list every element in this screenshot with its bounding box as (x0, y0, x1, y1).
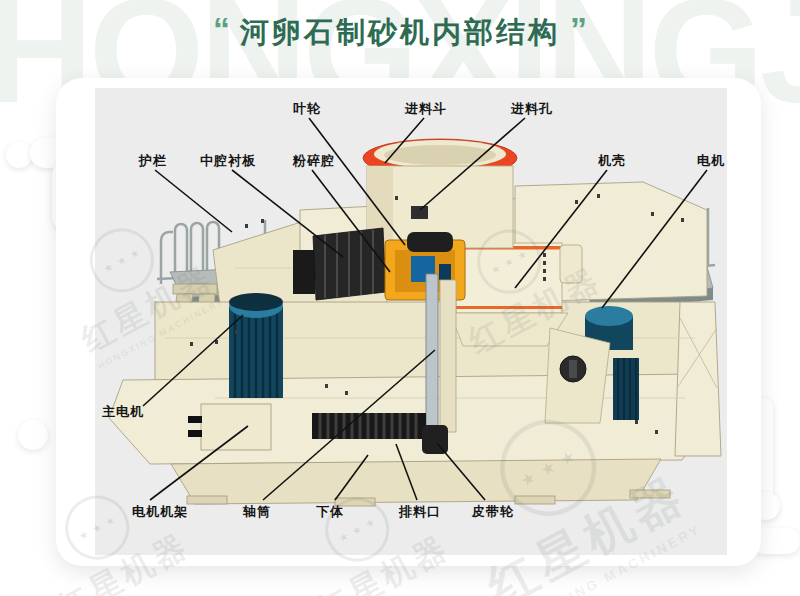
callout-label-zhoutong: 轴筒 (243, 503, 271, 521)
callout-label-jinliaokong: 进料孔 (511, 100, 553, 118)
diagram-card: 叶轮进料斗进料孔护栏中腔衬板粉碎腔机壳电机主电机电机机架轴筒下体排料口皮带轮 (56, 78, 761, 566)
discharge-port (312, 413, 426, 439)
deco-circle-left-mid (18, 420, 48, 450)
deco-circle-top-left (6, 142, 32, 168)
quote-open-icon: “ (213, 12, 230, 46)
shaft-flange (560, 356, 586, 382)
header: “ 河卵石制砂机内部结构 ” (0, 14, 800, 52)
main-motor (229, 293, 283, 398)
quote-close-icon: ” (570, 12, 587, 46)
callout-label-jinliaodou: 进料斗 (405, 100, 447, 118)
callout-label-dianjijijia: 电机机架 (132, 503, 188, 521)
belt-pulley (422, 425, 448, 454)
callout-label-pidailun: 皮带轮 (472, 503, 514, 521)
callout-label-dianji: 电机 (697, 152, 725, 170)
callout-label-fensuiqiang: 粉碎腔 (293, 152, 335, 170)
callout-label-zhongqiangchenban: 中腔衬板 (200, 152, 256, 170)
main-shaft (426, 274, 456, 446)
feed-opening (411, 206, 428, 219)
diagram-panel: 叶轮进料斗进料孔护栏中腔衬板粉碎腔机壳电机主电机电机机架轴筒下体排料口皮带轮 (95, 88, 727, 555)
sand-maker-cutaway-illustration (95, 88, 727, 555)
callout-label-jike: 机壳 (598, 152, 626, 170)
page-title: 河卵石制砂机内部结构 (240, 14, 560, 52)
page: { "title": { "quote_open": "“", "text": … (0, 0, 800, 596)
callout-label-yelun: 叶轮 (293, 100, 321, 118)
callout-label-hulan: 护栏 (139, 152, 167, 170)
callout-label-zhudianji: 主电机 (102, 403, 144, 421)
callout-label-xiati: 下体 (316, 503, 344, 521)
callout-label-pailiaokou: 排料口 (399, 503, 441, 521)
